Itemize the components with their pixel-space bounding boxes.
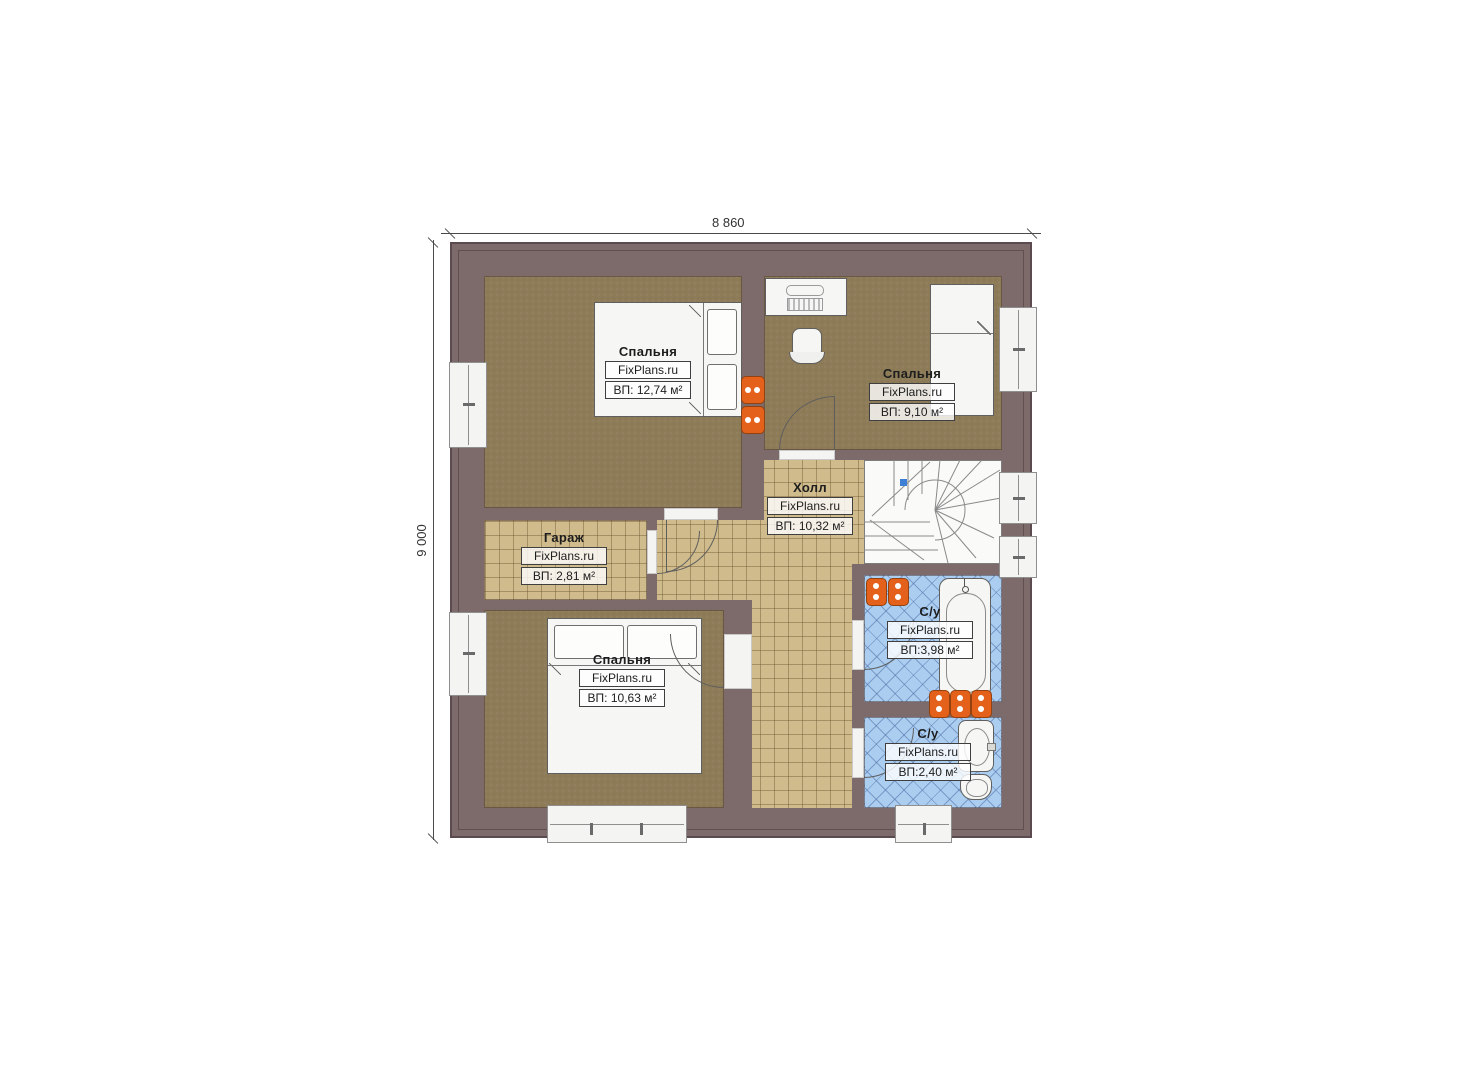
brand-watermark: FixPlans.ru: [605, 361, 691, 379]
window: [449, 362, 487, 448]
room-name: Холл: [793, 480, 827, 495]
window: [895, 805, 952, 843]
room-name: Спальня: [593, 652, 651, 667]
room-name: Спальня: [883, 366, 941, 381]
room-label-bedroom3: Спальня FixPlans.ru ВП: 10,63 м²: [579, 652, 665, 707]
floor-plan: Спальня FixPlans.ru ВП: 12,74 м² Спальня…: [450, 242, 1032, 838]
room-label-bedroom2: Спальня FixPlans.ru ВП: 9,10 м²: [869, 366, 955, 421]
room-name: Гараж: [544, 530, 584, 545]
stair-marker: [900, 479, 907, 486]
faucet-icon: [987, 743, 996, 751]
dimension-height-label: 9 000: [414, 524, 429, 557]
radiator: [741, 406, 765, 434]
room-area: ВП:3,98 м²: [887, 641, 973, 659]
door: [724, 634, 752, 689]
dimension-width-label: 8 860: [712, 215, 745, 230]
room-name: С/у: [917, 726, 938, 741]
door: [664, 508, 718, 520]
laptop-icon: [786, 285, 824, 296]
door-leaf: [834, 396, 835, 450]
room-label-bedroom1: Спальня FixPlans.ru ВП: 12,74 м²: [605, 344, 691, 399]
pillow: [707, 364, 737, 410]
dimension-line: [433, 240, 434, 840]
room-name: С/у: [919, 604, 940, 619]
toilet-bowl: [966, 779, 988, 797]
brand-watermark: FixPlans.ru: [579, 669, 665, 687]
room-area: ВП: 12,74 м²: [605, 381, 691, 399]
window: [999, 536, 1037, 578]
door: [852, 728, 864, 778]
room-label-garage: Гараж FixPlans.ru ВП: 2,81 м²: [521, 530, 607, 585]
radiator: [866, 578, 887, 606]
room-area: ВП: 10,32 м²: [767, 517, 853, 535]
keyboard-icon: [787, 298, 823, 311]
radiator: [950, 690, 971, 718]
floor-plan-page: 8 860 9 000: [0, 0, 1474, 1080]
radiator: [929, 690, 950, 718]
door: [852, 620, 864, 670]
desk: [765, 278, 847, 316]
room-label-hall: Холл FixPlans.ru ВП: 10,32 м²: [767, 480, 853, 535]
brand-watermark: FixPlans.ru: [887, 621, 973, 639]
radiator: [888, 578, 909, 606]
brand-watermark: FixPlans.ru: [869, 383, 955, 401]
room-area: ВП:2,40 м²: [885, 763, 971, 781]
staircase: [864, 460, 1002, 564]
door: [779, 450, 835, 460]
room-area: ВП: 9,10 м²: [869, 403, 955, 421]
interior-wall: [484, 508, 764, 520]
brand-watermark: FixPlans.ru: [885, 743, 971, 761]
room-label-bathroom2: С/у FixPlans.ru ВП:2,40 м²: [885, 726, 971, 781]
room-area: ВП: 10,63 м²: [579, 689, 665, 707]
door: [647, 530, 657, 574]
interior-wall: [484, 600, 752, 610]
window: [999, 472, 1037, 524]
brand-watermark: FixPlans.ru: [767, 497, 853, 515]
radiator: [971, 690, 992, 718]
pillow: [707, 309, 737, 355]
brand-watermark: FixPlans.ru: [521, 547, 607, 565]
room-area: ВП: 2,81 м²: [521, 567, 607, 585]
interior-wall: [852, 564, 1002, 575]
faucet-icon: [962, 586, 969, 593]
window: [449, 612, 487, 696]
dimension-line: [441, 233, 1041, 234]
room-name: Спальня: [619, 344, 677, 359]
window: [547, 805, 687, 843]
room-label-bathroom1: С/у FixPlans.ru ВП:3,98 м²: [887, 604, 973, 659]
window: [999, 307, 1037, 392]
radiator: [741, 376, 765, 404]
